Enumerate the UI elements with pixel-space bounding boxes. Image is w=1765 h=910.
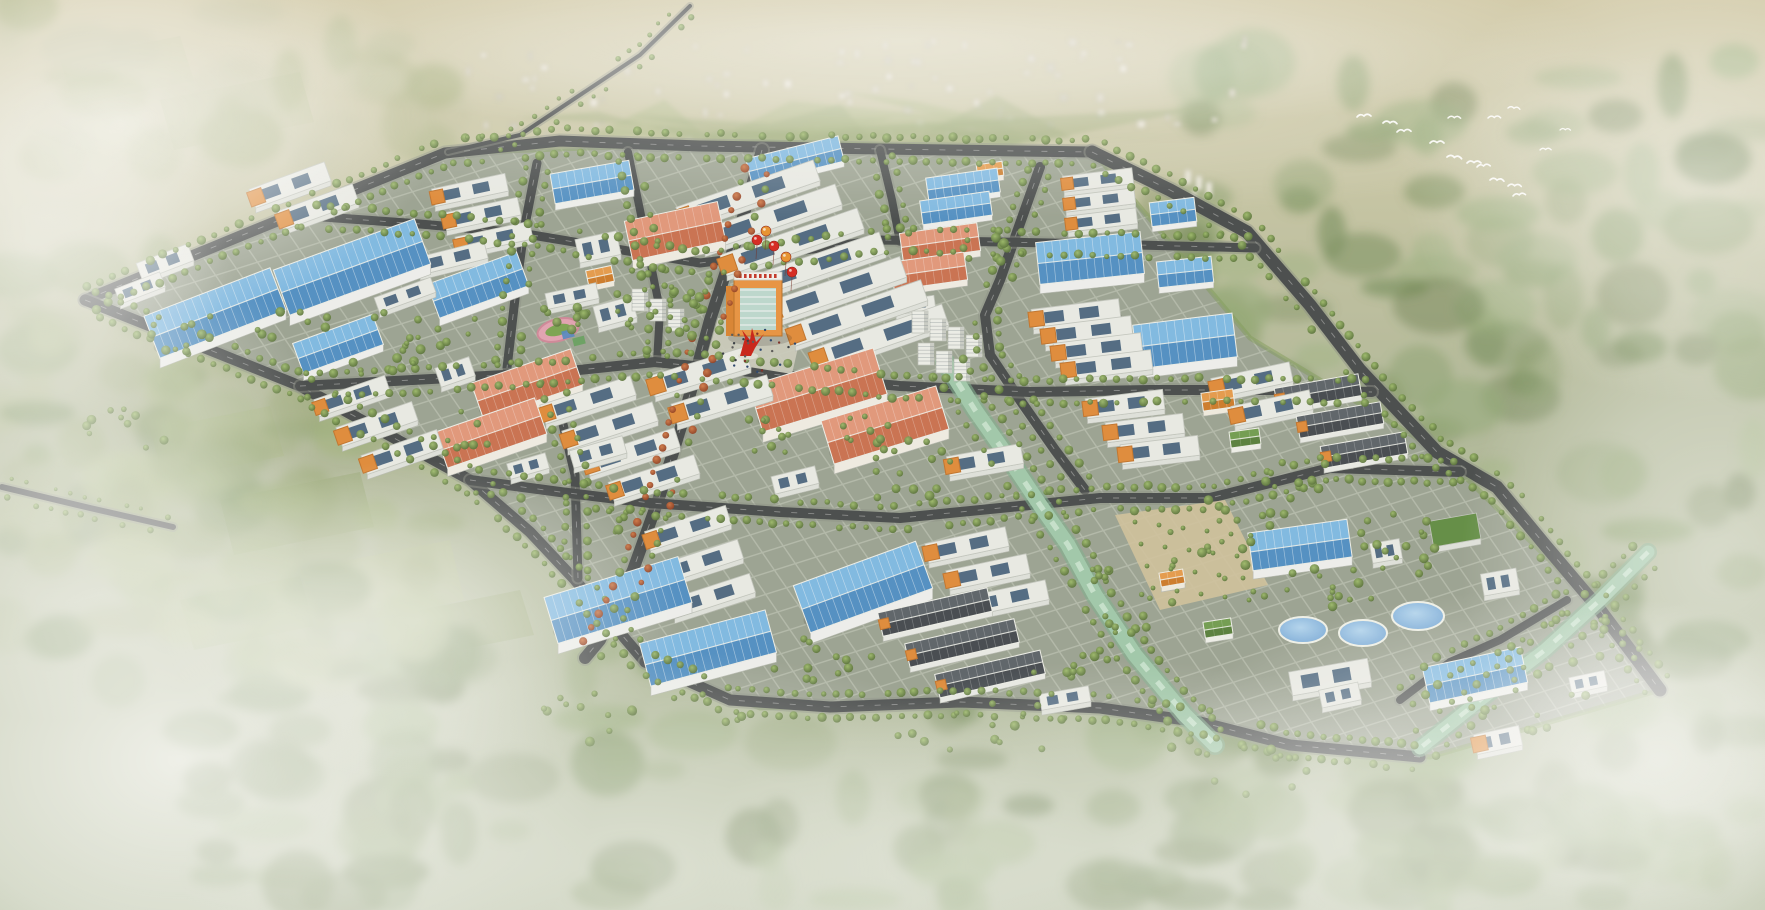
aerial-rendering-canvas [0, 0, 1765, 910]
fog-overlay [0, 0, 1765, 910]
industrial-park-rendering [0, 0, 1765, 910]
warm-tint-overlay [0, 0, 1765, 910]
